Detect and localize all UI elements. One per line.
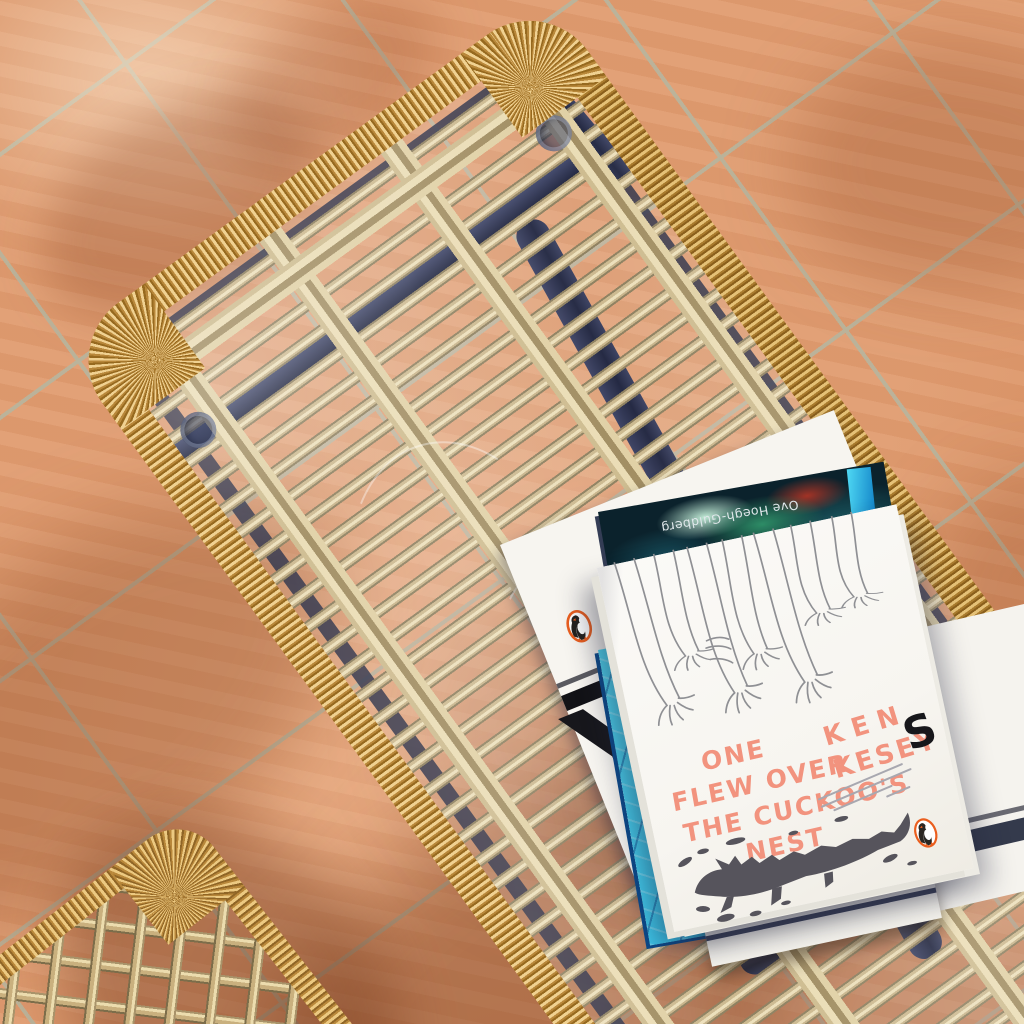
penguin-logo-icon bbox=[561, 606, 597, 647]
book-stack: Y Ove Hoegh-Guldberg bbox=[0, 0, 1024, 1024]
patio-scene: Y Ove Hoegh-Guldberg bbox=[0, 0, 1024, 1024]
